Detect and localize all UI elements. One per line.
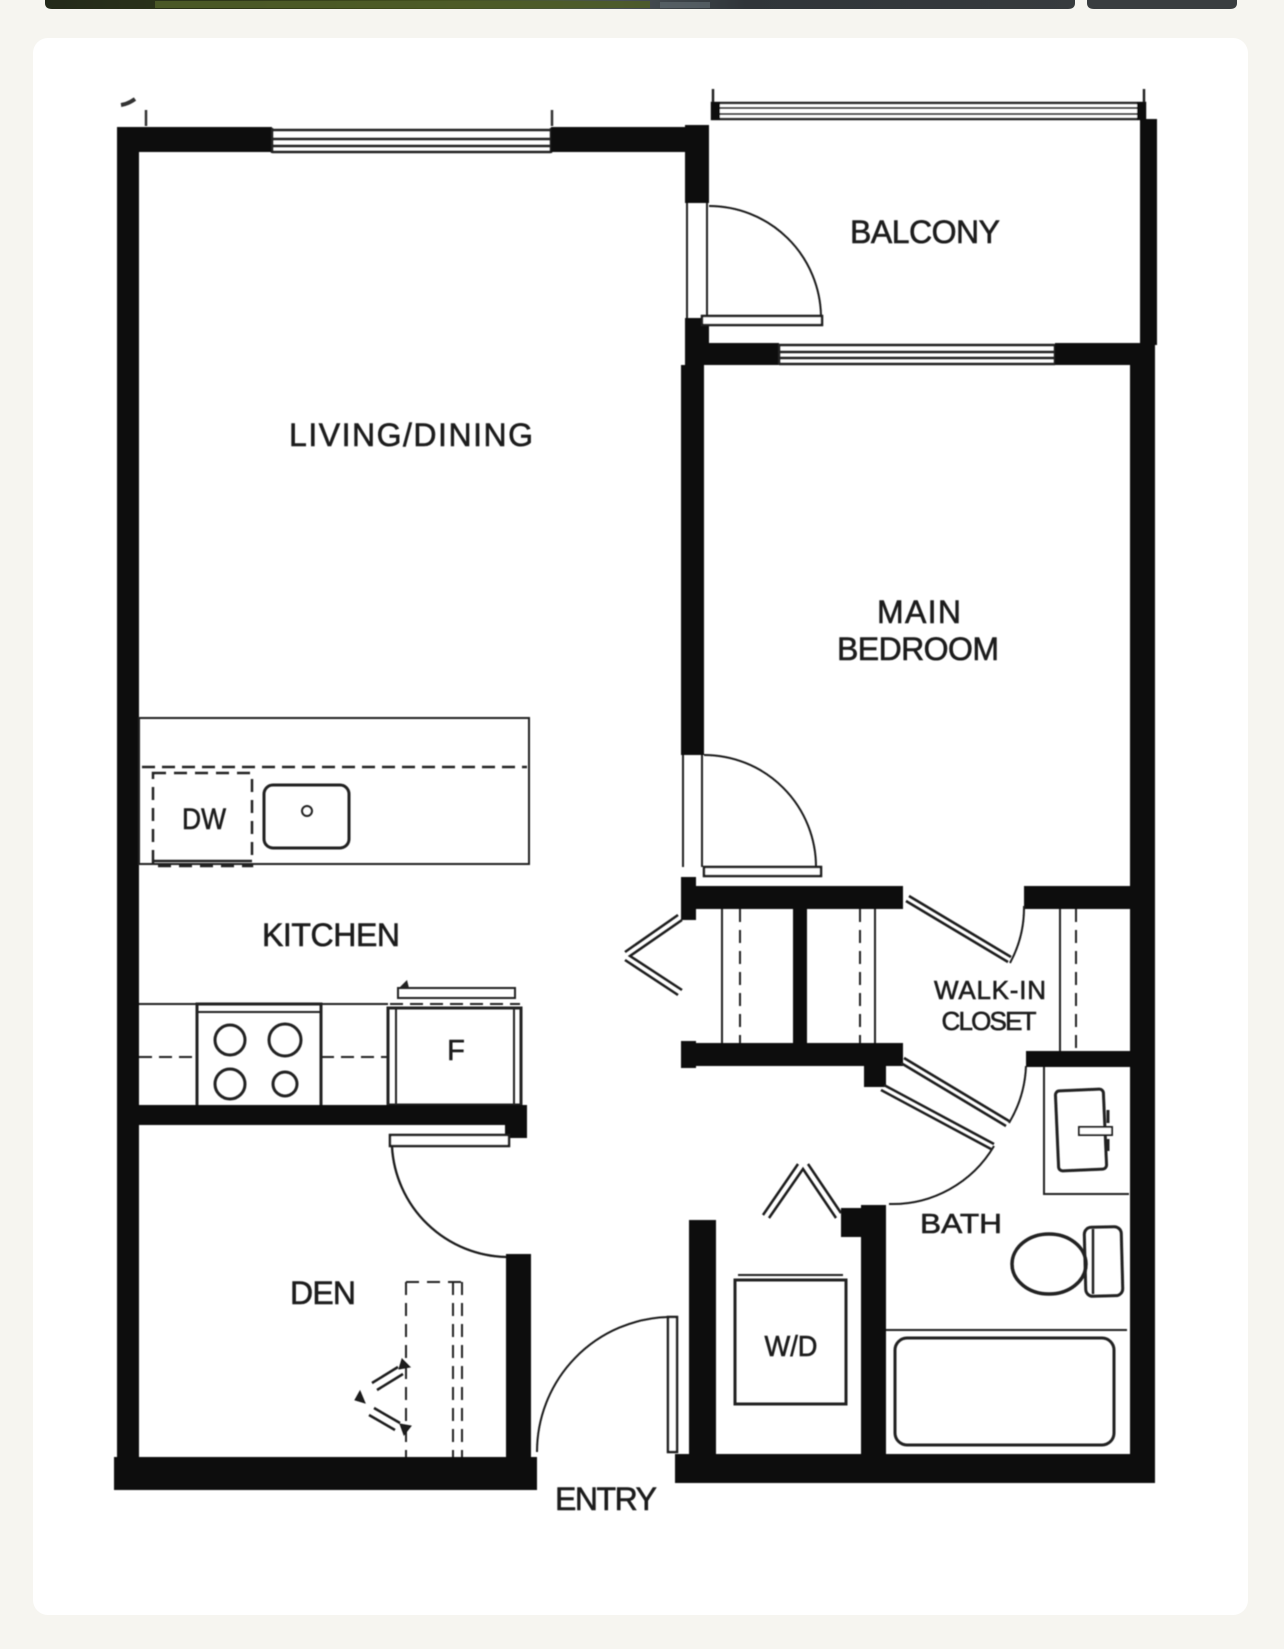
svg-text:WALK-IN: WALK-IN — [934, 975, 1046, 1005]
svg-text:CLOSET: CLOSET — [942, 1006, 1037, 1036]
svg-text:BALCONY: BALCONY — [850, 214, 1000, 250]
svg-text:BATH: BATH — [920, 1208, 1002, 1239]
svg-text:F: F — [447, 1035, 465, 1067]
svg-text:BEDROOM: BEDROOM — [837, 631, 999, 667]
svg-text:LIVING/DINING: LIVING/DINING — [289, 417, 533, 453]
svg-text:KITCHEN: KITCHEN — [262, 917, 400, 953]
svg-text:ENTRY: ENTRY — [555, 1481, 657, 1517]
svg-text:DW: DW — [182, 803, 227, 836]
svg-text:MAIN: MAIN — [877, 594, 961, 630]
svg-text:DEN: DEN — [290, 1275, 356, 1311]
svg-text:W/D: W/D — [765, 1331, 818, 1363]
